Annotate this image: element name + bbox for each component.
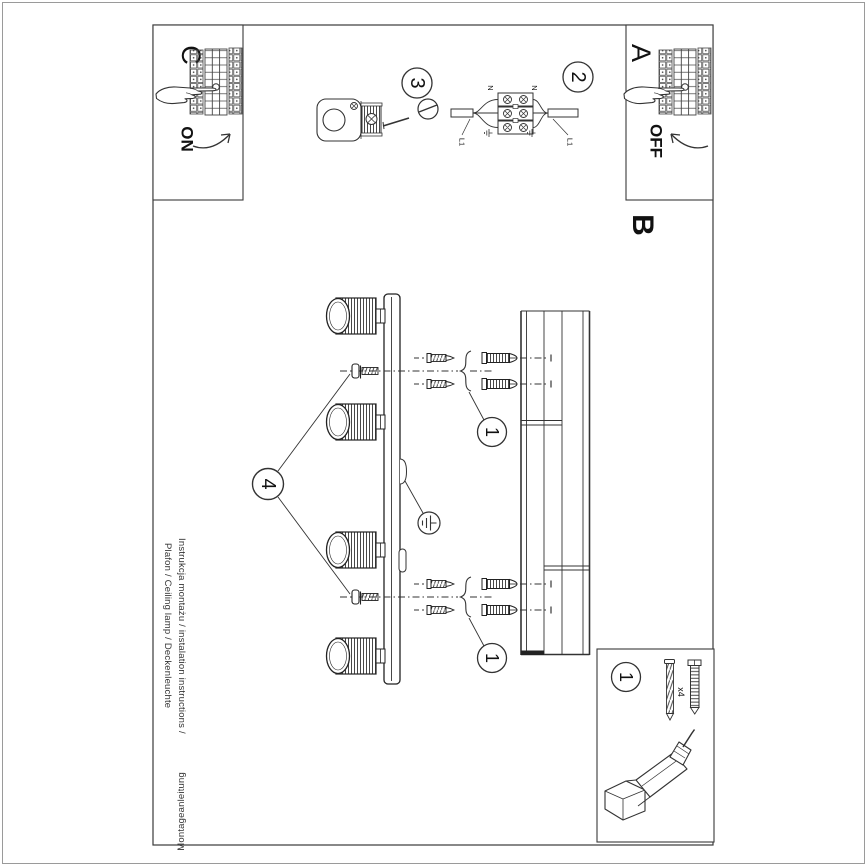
step-4-number: 4 bbox=[257, 478, 279, 489]
breaker-panel-drawing bbox=[190, 48, 242, 115]
switch-off-label: OFF bbox=[647, 124, 666, 158]
parts-box: 1 x4 bbox=[597, 649, 714, 842]
spotlight-4 bbox=[327, 638, 386, 674]
step-1-number: 1 bbox=[482, 653, 502, 663]
breaker-panel-drawing bbox=[659, 48, 711, 115]
step-2-number: 2 bbox=[567, 71, 589, 82]
breaker-off-panel-a: A OFF bbox=[624, 25, 713, 200]
section-label-b: B bbox=[626, 214, 659, 236]
step-3-number: 3 bbox=[406, 77, 428, 88]
ground-tab bbox=[400, 459, 407, 484]
panel-a-letter: A bbox=[626, 44, 656, 62]
quantity-label: x4 bbox=[676, 687, 686, 697]
spotlight-1 bbox=[327, 298, 386, 334]
wire-label-l1-right: L1 bbox=[566, 138, 575, 146]
wire-label-n-right: N bbox=[530, 85, 539, 90]
step-1-number: 1 bbox=[482, 427, 502, 437]
bar-bump bbox=[399, 549, 406, 572]
footer-title-flipped-word: Montageanleitung bbox=[176, 772, 187, 851]
footer-title-line: Instrukcja montażu / instalation instruc… bbox=[176, 538, 187, 734]
switch-on-label: ON bbox=[178, 126, 197, 152]
terminal-block-drawing bbox=[498, 93, 533, 134]
lamp-bar bbox=[384, 294, 400, 684]
page-edge bbox=[3, 3, 865, 864]
wire-label-n-left: N bbox=[486, 85, 495, 90]
wire-label-l1-left: L1 bbox=[458, 138, 467, 146]
instruction-sheet: C ON A OFF B 2 bbox=[0, 0, 868, 868]
spotlight-3 bbox=[327, 532, 386, 568]
breaker-on-panel-c: C ON bbox=[153, 25, 243, 200]
step-1-number: 1 bbox=[616, 672, 636, 682]
footer-product-line: Plafon / Ceiling lamp / Deckenleuchte bbox=[162, 543, 173, 708]
spotlight-2 bbox=[327, 404, 386, 440]
